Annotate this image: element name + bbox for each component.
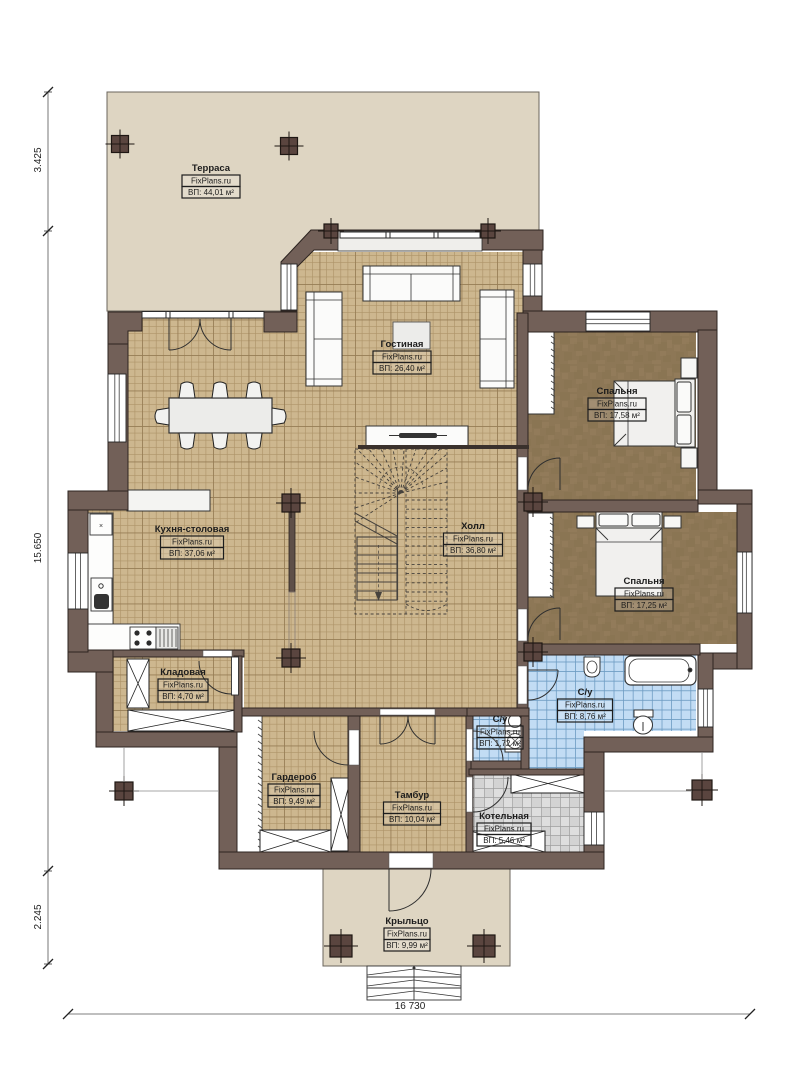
svg-text:С/у: С/у (578, 687, 594, 698)
svg-text:FixPlans.ru: FixPlans.ru (565, 701, 605, 710)
svg-text:FixPlans.ru: FixPlans.ru (274, 786, 314, 795)
svg-text:FixPlans.ru: FixPlans.ru (453, 535, 493, 544)
svg-text:FixPlans.ru: FixPlans.ru (382, 353, 422, 362)
svg-text:FixPlans.ru: FixPlans.ru (163, 681, 203, 690)
svg-text:ВП: 36,80 м²: ВП: 36,80 м² (450, 546, 496, 555)
svg-text:3.425: 3.425 (33, 147, 44, 172)
svg-text:Кладовая: Кладовая (160, 667, 206, 678)
svg-text:FixPlans.ru: FixPlans.ru (191, 177, 231, 186)
svg-text:ВП: 8,76 м²: ВП: 8,76 м² (564, 712, 606, 721)
svg-text:FixPlans.ru: FixPlans.ru (480, 728, 520, 737)
svg-text:FixPlans.ru: FixPlans.ru (624, 590, 664, 599)
svg-text:Спальня: Спальня (596, 386, 637, 397)
svg-text:FixPlans.ru: FixPlans.ru (387, 930, 427, 939)
svg-text:Холл: Холл (461, 521, 485, 532)
svg-text:16 730: 16 730 (395, 1001, 426, 1012)
svg-text:Гостиная: Гостиная (381, 339, 424, 350)
svg-text:Кухня-столовая: Кухня-столовая (155, 524, 230, 535)
svg-text:ВП: 26,40 м²: ВП: 26,40 м² (379, 364, 425, 373)
svg-text:Терраса: Терраса (192, 163, 231, 174)
svg-text:Гардероб: Гардероб (272, 772, 317, 783)
svg-text:FixPlans.ru: FixPlans.ru (172, 538, 212, 547)
svg-text:Котельная: Котельная (479, 811, 529, 822)
svg-text:ВП: 9,99 м²: ВП: 9,99 м² (386, 941, 428, 950)
svg-text:ВП: 5,46 м²: ВП: 5,46 м² (483, 836, 525, 845)
svg-text:×: × (99, 523, 103, 530)
svg-text:FixPlans.ru: FixPlans.ru (597, 400, 637, 409)
svg-text:ВП: 10,04 м²: ВП: 10,04 м² (389, 815, 435, 824)
svg-text:ВП: 37,06 м²: ВП: 37,06 м² (169, 549, 215, 558)
svg-text:ВП: 9,49 м²: ВП: 9,49 м² (273, 797, 315, 806)
svg-text:15.650: 15.650 (33, 532, 44, 563)
svg-text:ВП: 44,01 м²: ВП: 44,01 м² (188, 188, 234, 197)
svg-text:С/у: С/у (493, 714, 509, 725)
svg-text:FixPlans.ru: FixPlans.ru (392, 804, 432, 813)
svg-text:ВП: 17,58 м²: ВП: 17,58 м² (594, 411, 640, 420)
svg-text:ВП: 1,72 м²: ВП: 1,72 м² (479, 739, 521, 748)
svg-text:2.245: 2.245 (33, 904, 44, 929)
svg-text:ВП: 17,25 м²: ВП: 17,25 м² (621, 601, 667, 610)
svg-text:Спальня: Спальня (623, 576, 664, 587)
svg-text:ВП: 4,70 м²: ВП: 4,70 м² (162, 692, 204, 701)
svg-text:Тамбур: Тамбур (395, 790, 430, 801)
svg-text:FixPlans.ru: FixPlans.ru (484, 825, 524, 834)
svg-text:Крыльцо: Крыльцо (385, 916, 428, 927)
